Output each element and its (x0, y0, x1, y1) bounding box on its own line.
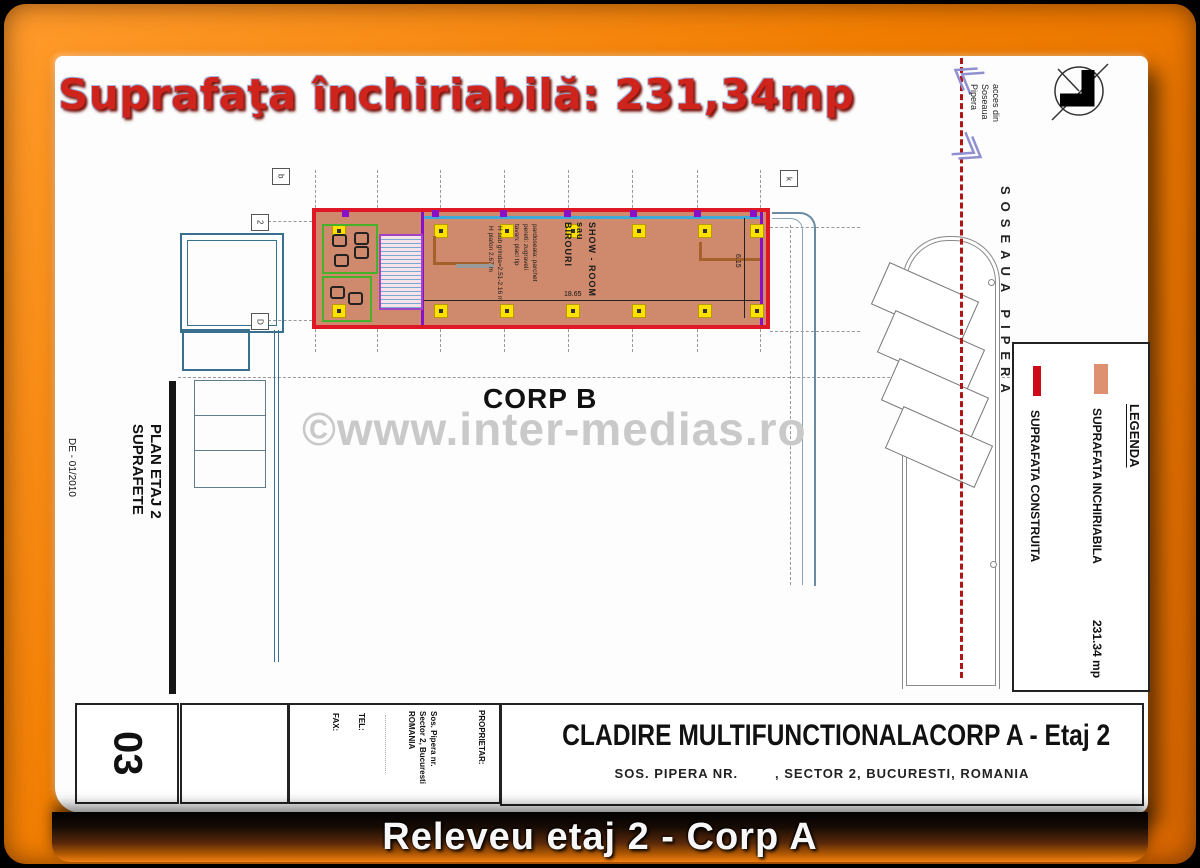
date-label: DE - 01/2010 (66, 438, 77, 497)
legend-item-label: SUPRAFATA INCHIRIABILA (1090, 408, 1104, 564)
toilet-fixture (354, 232, 369, 245)
plan-sheet-label-line: SUPRAFETE (128, 424, 146, 519)
finish-note-line: pardoseala: parchet (530, 224, 539, 281)
owner-address-line: ROMANIA (406, 711, 417, 784)
plan-wall-line (424, 216, 762, 219)
plan-wall-stud (564, 210, 571, 217)
finish-note: pardoseala: parchet pereti: zugraveli ta… (512, 224, 539, 281)
site-axis-line (178, 377, 1010, 378)
legend: LEGENDA SUPRAFATA INCHIRIABILA 231.34 mp… (1012, 342, 1150, 692)
column-marker (750, 304, 764, 318)
owner-box: FAX: TEL: Sos. Pipera nr. Sector 2, Bucu… (288, 703, 501, 804)
site-marker-dot (988, 279, 995, 286)
fax-label: FAX: (330, 713, 341, 731)
column-marker (698, 304, 712, 318)
sheet-number: 03 (105, 731, 150, 776)
project-title: CLADIRE MULTIFUNCTIONALACORP A - Etaj 2 (562, 719, 1110, 753)
room-label-line: SHOW - ROOM (586, 222, 598, 297)
room-label-line: BIROURI (562, 222, 574, 297)
watermark: ©www.inter-medias.ro (302, 402, 807, 456)
floor-plan-leasable-area: 18.65 6.15 H sub grinda=2.51-2.16 m H pl… (312, 208, 770, 329)
site-marker-dot (990, 561, 997, 568)
project-address: SOS. PIPERA NR. , SECTOR 2, BUCURESTI, R… (615, 766, 1030, 781)
legend-item-value: 231.34 mp (1090, 620, 1104, 678)
staircase (379, 234, 423, 310)
column-marker (500, 304, 514, 318)
footer-caption: Releveu etaj 2 - Corp A (382, 816, 818, 859)
plan-wall-stud (342, 210, 349, 217)
column-marker (750, 224, 764, 238)
dimension-value: 6.15 (734, 254, 741, 268)
divider (385, 715, 386, 773)
toilet-fixture (332, 234, 347, 247)
plan-sheet-label: PLAN ETAJ 2 SUPRAFETE (128, 424, 164, 519)
road-edge-line (274, 330, 279, 662)
room-label: SHOW - ROOM sau BIROURI (562, 222, 598, 297)
height-note-line: H sub grinda=2.51-2.16 m (495, 226, 504, 301)
road-name-label: SOSEAUA PIPERA (998, 186, 1013, 400)
owner-address: Sos. Pipera nr. Sector 2, Bucuresti ROMA… (406, 711, 439, 784)
column-marker (698, 224, 712, 238)
sink-fixture (354, 246, 369, 259)
height-note-line: H plafon 2.67 m (486, 226, 495, 301)
adjacent-building-outline (182, 329, 250, 371)
column-marker (566, 304, 580, 318)
legend-swatch-inchiriabila (1094, 364, 1108, 394)
toilet-fixture (330, 286, 345, 299)
grid-label: b (272, 168, 290, 185)
north-arrow-icon (1048, 62, 1112, 131)
bathroom-outline (322, 224, 378, 274)
column-marker (434, 304, 448, 318)
grid-line (268, 221, 312, 222)
dimension-line (744, 218, 745, 318)
bathroom-outline (322, 276, 372, 322)
plan-wall-stud (694, 210, 701, 217)
owner-label: PROPRIETAR: (476, 710, 487, 765)
parking-spaces (194, 380, 266, 488)
height-note: H sub grinda=2.51-2.16 m H plafon 2.67 m (486, 226, 504, 301)
access-label-line: acces din (990, 84, 1001, 122)
sink-fixture (334, 254, 349, 267)
plan-wall-stud (630, 210, 637, 217)
finish-note-line: pereti: zugraveli (521, 224, 530, 281)
dimension-line (424, 300, 760, 301)
room-label-line: sau (574, 222, 586, 297)
plan-wall-stud (750, 210, 757, 217)
grid-label: k (780, 170, 798, 187)
column-marker (434, 224, 448, 238)
owner-address-line: Sector 2, Bucuresti (417, 711, 428, 784)
plan-sheet-label-line: PLAN ETAJ 2 (146, 424, 164, 519)
page-title: Suprafaţa închiriabilă: 231,34mp (58, 70, 854, 119)
column-marker (632, 304, 646, 318)
tel-label: TEL: (356, 713, 367, 731)
boundary-wall (169, 381, 176, 694)
legend-swatch-construita (1033, 366, 1041, 396)
furniture-line (433, 236, 436, 264)
access-label-line: Soseaua (979, 84, 990, 122)
access-label: acces din Soseaua Pipera (968, 84, 1001, 122)
access-label-line: Pipera (968, 84, 979, 122)
grid-label: D (251, 313, 269, 330)
furniture-line (699, 258, 760, 261)
page: Suprafaţa închiriabilă: 231,34mp acces d… (0, 0, 1200, 868)
plan-wall-stud (500, 210, 507, 217)
project-title-box: CLADIRE MULTIFUNCTIONALACORP A - Etaj 2 … (500, 703, 1144, 806)
grid-label: 2 (251, 214, 269, 231)
owner-address-line: Sos. Pipera nr. (428, 711, 439, 784)
sheet-number-box: 03 (75, 703, 179, 804)
legend-title: LEGENDA (1127, 404, 1142, 468)
finish-note-line: tavan: placi tip (512, 224, 521, 281)
plan-wall-stud (432, 210, 439, 217)
legend-item-label: SUPRAFATA CONSTRUITA (1028, 410, 1042, 562)
toilet-fixture (348, 292, 363, 305)
column-marker (632, 224, 646, 238)
footer-banner: Releveu etaj 2 - Corp A (52, 812, 1148, 862)
empty-title-box (180, 703, 289, 804)
